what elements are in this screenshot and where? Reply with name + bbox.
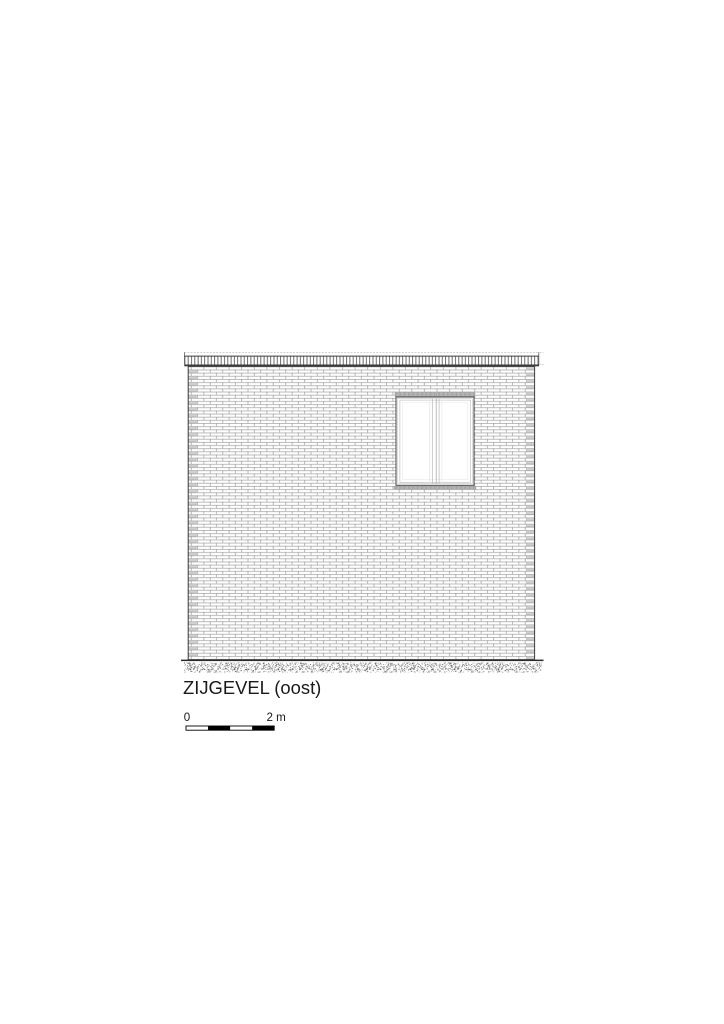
svg-text:ZIJGEVEL (oost): ZIJGEVEL (oost) (183, 677, 321, 698)
svg-text:2 m: 2 m (267, 711, 286, 724)
svg-text:0: 0 (184, 711, 190, 724)
